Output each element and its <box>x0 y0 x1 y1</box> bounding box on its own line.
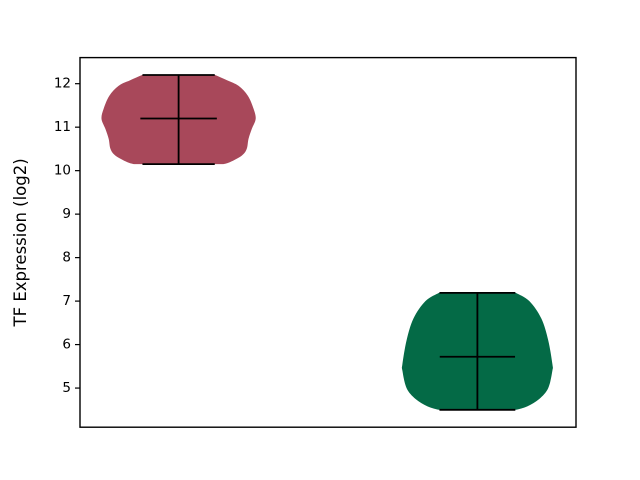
y-tick-label: 6 <box>62 337 71 353</box>
y-tick-label: 7 <box>62 293 71 309</box>
y-tick-label: 11 <box>54 119 71 135</box>
y-axis-label: TF Expression (log2) <box>11 158 30 327</box>
figure: 56789101112 TF Expression (log2) <box>0 0 640 480</box>
y-tick-label: 10 <box>54 163 71 179</box>
violin-plot-svg: 56789101112 TF Expression (log2) <box>0 0 640 480</box>
y-tick-label: 5 <box>62 380 71 396</box>
y-tick-label: 12 <box>54 76 71 92</box>
plot-generated: 56789101112 <box>54 58 576 428</box>
y-tick-label: 8 <box>62 250 71 266</box>
y-tick-label: 9 <box>62 206 71 222</box>
